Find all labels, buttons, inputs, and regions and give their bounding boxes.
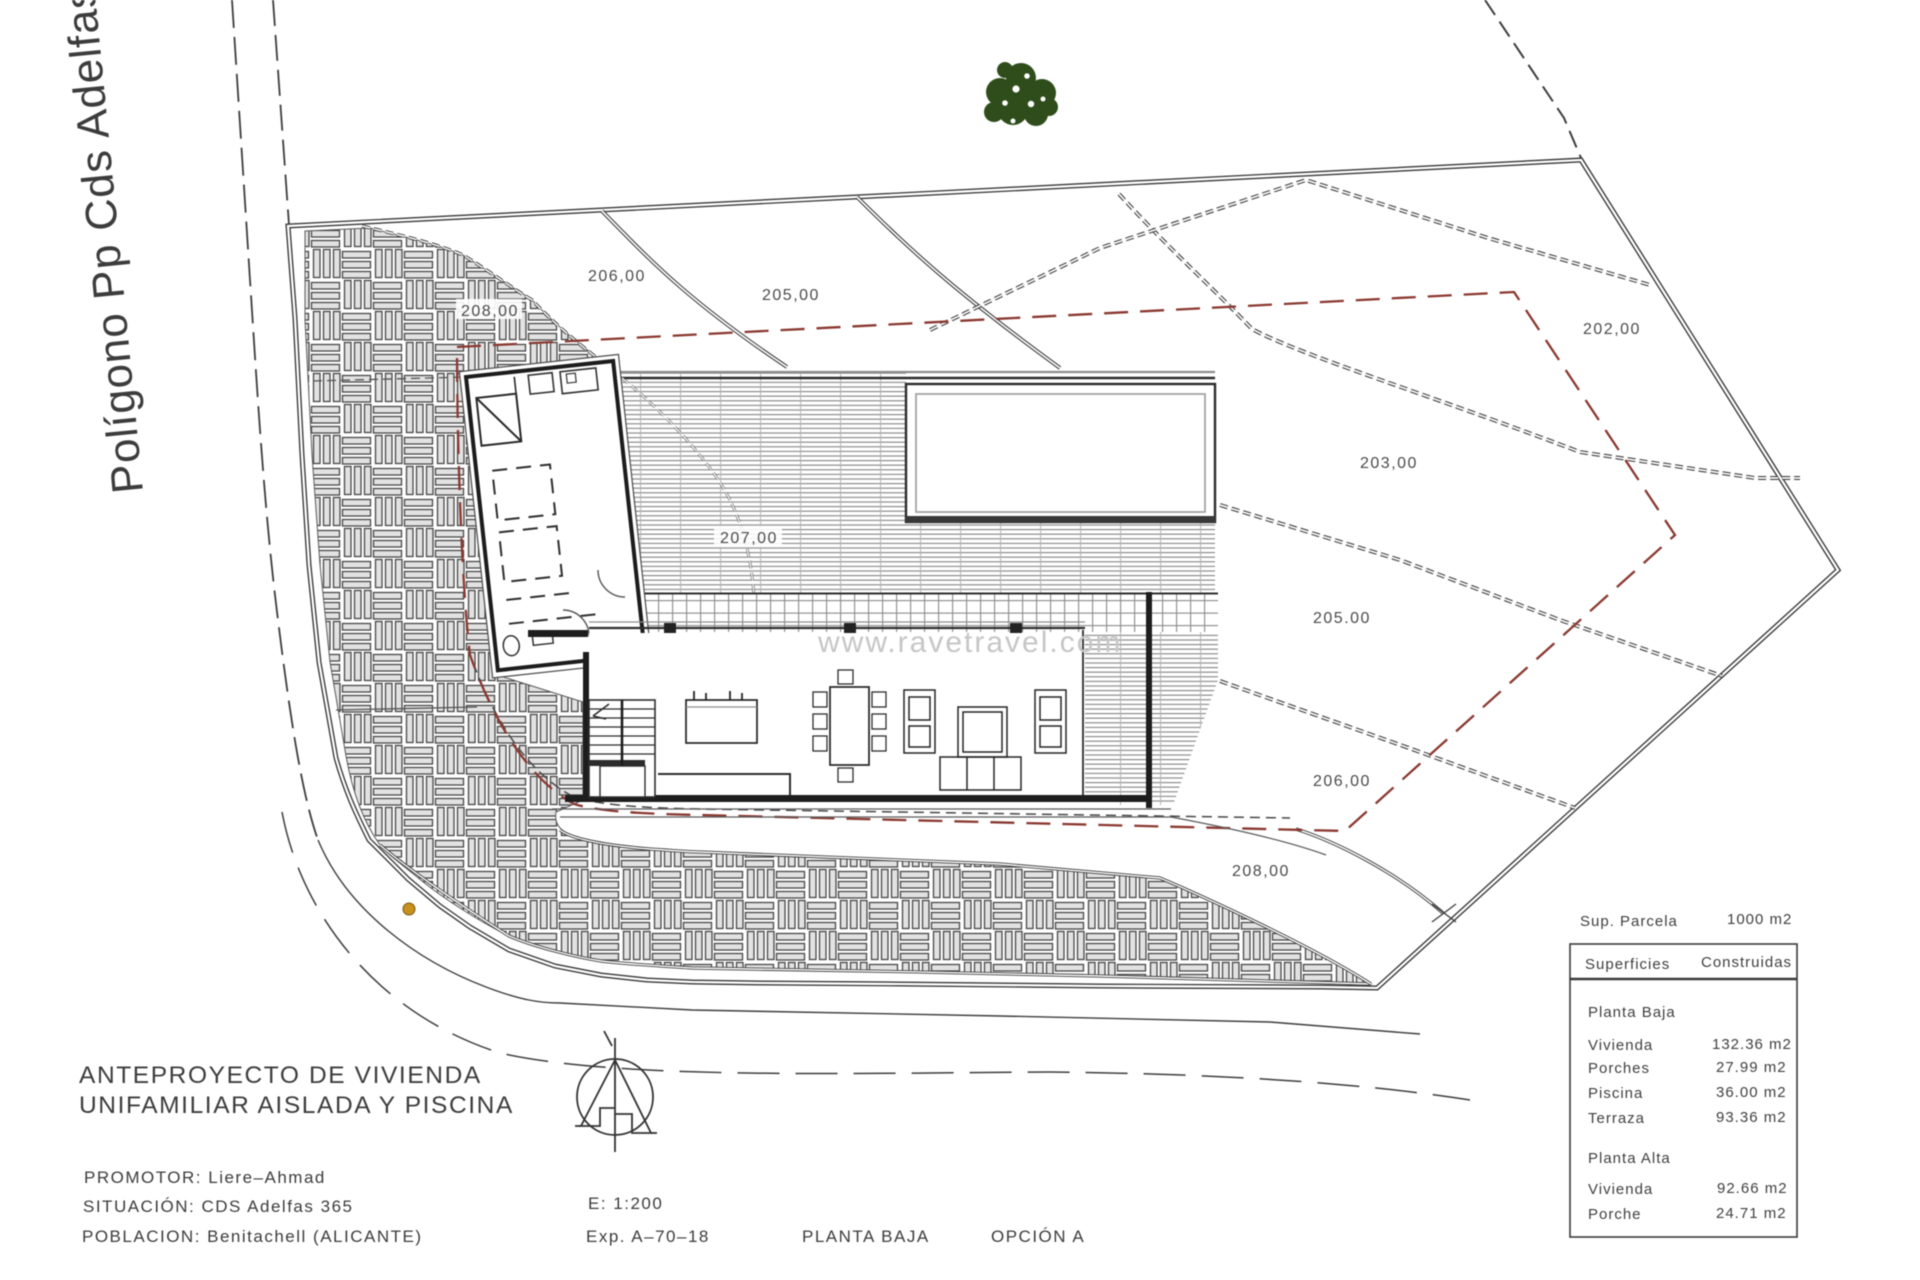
svg-text:Planta Baja: Planta Baja: [1588, 1004, 1676, 1021]
svg-text:27.99 m2: 27.99 m2: [1716, 1059, 1787, 1076]
svg-text:SITUACIÓN: CDS Adelfas 365: SITUACIÓN: CDS Adelfas 365: [83, 1197, 353, 1216]
svg-text:24.71 m2: 24.71 m2: [1716, 1205, 1787, 1222]
svg-text:Porches: Porches: [1588, 1060, 1650, 1077]
svg-text:36.00 m2: 36.00 m2: [1716, 1084, 1787, 1101]
svg-text:ANTEPROYECTO DE VIVIENDA: ANTEPROYECTO DE VIVIENDA: [79, 1062, 482, 1089]
svg-text:UNIFAMILIAR AISLADA Y PISCI: UNIFAMILIAR AISLADA Y PISCINA: [79, 1092, 514, 1119]
svg-text:Vivienda: Vivienda: [1588, 1181, 1653, 1198]
svg-text:Planta Alta: Planta Alta: [1588, 1150, 1671, 1167]
svg-text:203,00: 203,00: [1360, 455, 1418, 472]
svg-text:132.36 m2: 132.36 m2: [1712, 1036, 1792, 1053]
svg-text:208,00: 208,00: [1232, 863, 1290, 880]
svg-text:Superficies: Superficies: [1585, 956, 1670, 973]
svg-text:205.00: 205.00: [1313, 610, 1371, 627]
svg-text:PLANTA BAJA: PLANTA BAJA: [802, 1227, 930, 1246]
svg-text:www.ravetravel.com: www.ravetravel.com: [817, 626, 1122, 659]
svg-text:OPCIÓN A: OPCIÓN A: [991, 1227, 1085, 1246]
svg-text:202,00: 202,00: [1583, 321, 1641, 338]
svg-text:Construidas: Construidas: [1701, 954, 1792, 971]
svg-text:1000 m2: 1000 m2: [1727, 911, 1792, 928]
svg-text:92.66 m2: 92.66 m2: [1717, 1180, 1788, 1197]
svg-text:93.36 m2: 93.36 m2: [1716, 1109, 1787, 1126]
svg-text:E: 1:200: E: 1:200: [588, 1194, 663, 1213]
svg-text:207,00: 207,00: [720, 530, 778, 547]
svg-text:Exp. A–70–18: Exp. A–70–18: [586, 1227, 710, 1246]
svg-text:Piscina: Piscina: [1588, 1085, 1643, 1102]
svg-text:206,00: 206,00: [1313, 773, 1371, 790]
svg-text:Sup. Parcela: Sup. Parcela: [1580, 913, 1678, 930]
svg-text:206,00: 206,00: [588, 268, 646, 285]
svg-text:Vivienda: Vivienda: [1588, 1037, 1653, 1054]
svg-text:PROMOTOR: Liere–Ahmad: PROMOTOR: Liere–Ahmad: [84, 1168, 326, 1187]
svg-text:208,00: 208,00: [461, 303, 519, 320]
svg-text:Terraza: Terraza: [1588, 1110, 1645, 1127]
svg-text:205,00: 205,00: [762, 287, 820, 304]
svg-text:POBLACION: Benitachell (ALIC: POBLACION: Benitachell (ALICANTE): [82, 1227, 422, 1246]
svg-text:Porche: Porche: [1588, 1206, 1642, 1223]
